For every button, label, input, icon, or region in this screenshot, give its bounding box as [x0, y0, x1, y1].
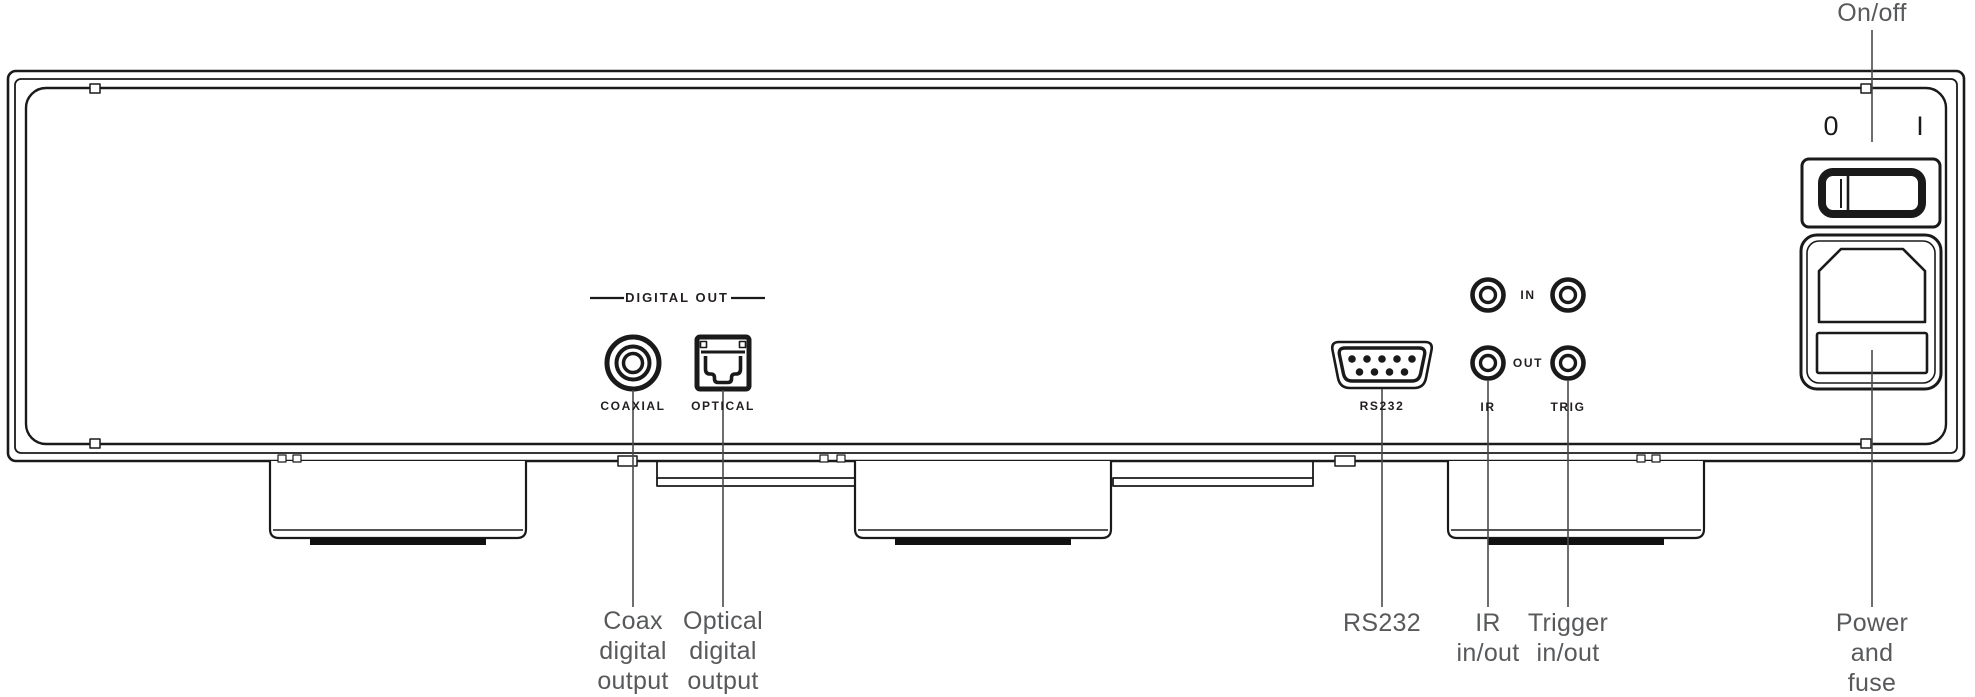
- out-label: OUT: [1513, 356, 1543, 370]
- rear-panel-line-art: [0, 0, 1975, 697]
- callout-coax-digital-output: Coax digital output: [597, 606, 668, 696]
- optical-label: OPTICAL: [691, 399, 755, 413]
- callout-optical-digital-output: Optical digital output: [683, 606, 763, 696]
- callout-power-and-fuse: Power and fuse: [1821, 608, 1924, 697]
- digital-out-header: DIGITAL OUT: [625, 290, 729, 305]
- chassis-feet: [270, 455, 1704, 545]
- callout-ir-in-out: IR in/out: [1457, 608, 1520, 668]
- switch-on-symbol: I: [1916, 111, 1924, 142]
- in-label: IN: [1520, 288, 1535, 302]
- coaxial-label: COAXIAL: [600, 399, 665, 413]
- rear-panel-diagram: DIGITAL OUT COAXIAL OPTICAL RS232 IN OUT…: [0, 0, 1975, 697]
- chassis-outline: [8, 71, 1964, 461]
- callout-on-off: On/off: [1837, 0, 1906, 28]
- trig-label: TRIG: [1550, 400, 1585, 414]
- callout-trigger-in-out: Trigger in/out: [1528, 608, 1608, 668]
- ir-label: IR: [1480, 400, 1495, 414]
- rs232-label: RS232: [1360, 399, 1405, 413]
- callout-rs232: RS232: [1343, 608, 1421, 638]
- switch-off-symbol: 0: [1823, 111, 1838, 142]
